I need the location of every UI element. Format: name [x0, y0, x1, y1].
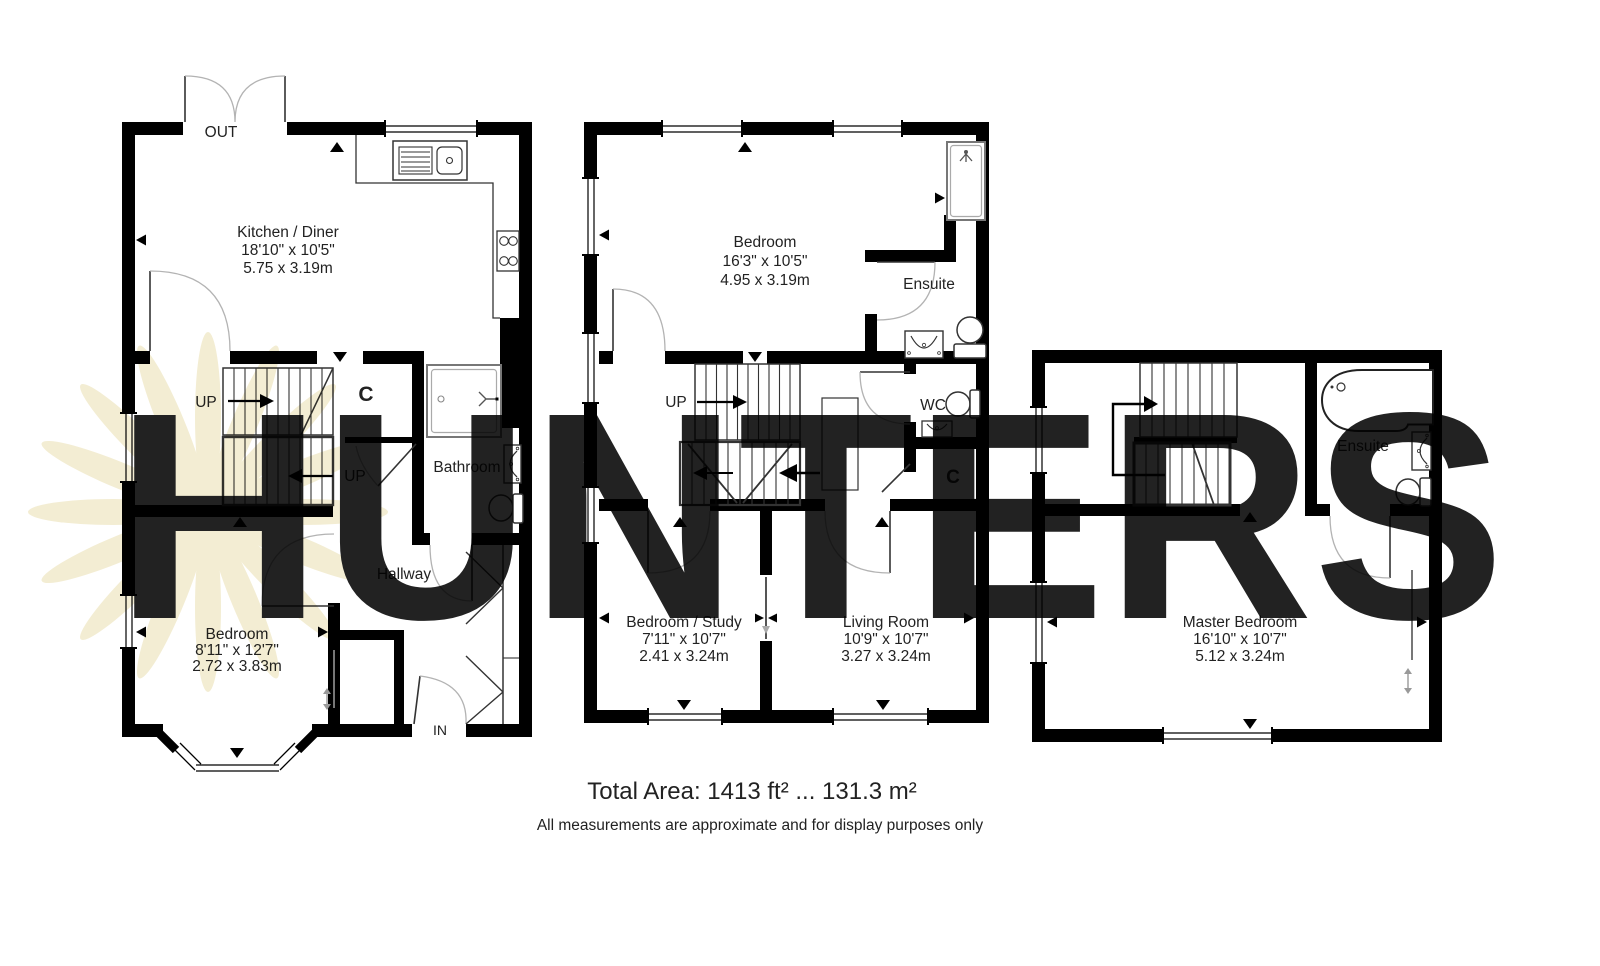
out-door-arcs: [185, 76, 285, 122]
window: [385, 120, 477, 137]
in-label: IN: [433, 722, 447, 738]
kitchen-sink-icon: [393, 141, 467, 180]
shower-icon: [947, 142, 985, 220]
kitchen-metric: 5.75 x 3.19m: [243, 260, 333, 277]
bedroom-metric: 4.95 x 3.19m: [720, 272, 810, 289]
hob-icon: [497, 231, 519, 271]
bedroom-imperial: 16'3" x 10'5": [722, 253, 807, 270]
window: [833, 120, 902, 137]
ensuite-label: Ensuite: [903, 276, 955, 293]
kitchen-counter: [356, 135, 519, 318]
out-label: OUT: [205, 124, 238, 141]
footer-total-area: Total Area: 1413 ft² ... 131.3 m²: [587, 778, 917, 805]
footer-disclaimer: All measurements are approximate and for…: [537, 817, 984, 834]
window: [1163, 727, 1272, 744]
window: [833, 708, 928, 725]
watermark: HUNTERS: [28, 332, 1505, 692]
bedroom-name: Bedroom: [734, 234, 797, 251]
watermark-text: HUNTERS: [115, 351, 1505, 681]
floorplan-canvas: OUT Kitchen / Diner 18'10" x 10'5" 5.75 …: [0, 0, 1600, 966]
window: [648, 708, 722, 725]
floorplan-svg: OUT Kitchen / Diner 18'10" x 10'5" 5.75 …: [0, 0, 1600, 966]
window: [582, 178, 599, 255]
kitchen-imperial: 18'10" x 10'5": [241, 242, 335, 259]
entrance-door-leaf: [414, 676, 420, 724]
window: [662, 120, 742, 137]
kitchen-name: Kitchen / Diner: [237, 224, 339, 241]
footer: Total Area: 1413 ft² ... 131.3 m² All me…: [537, 778, 984, 834]
